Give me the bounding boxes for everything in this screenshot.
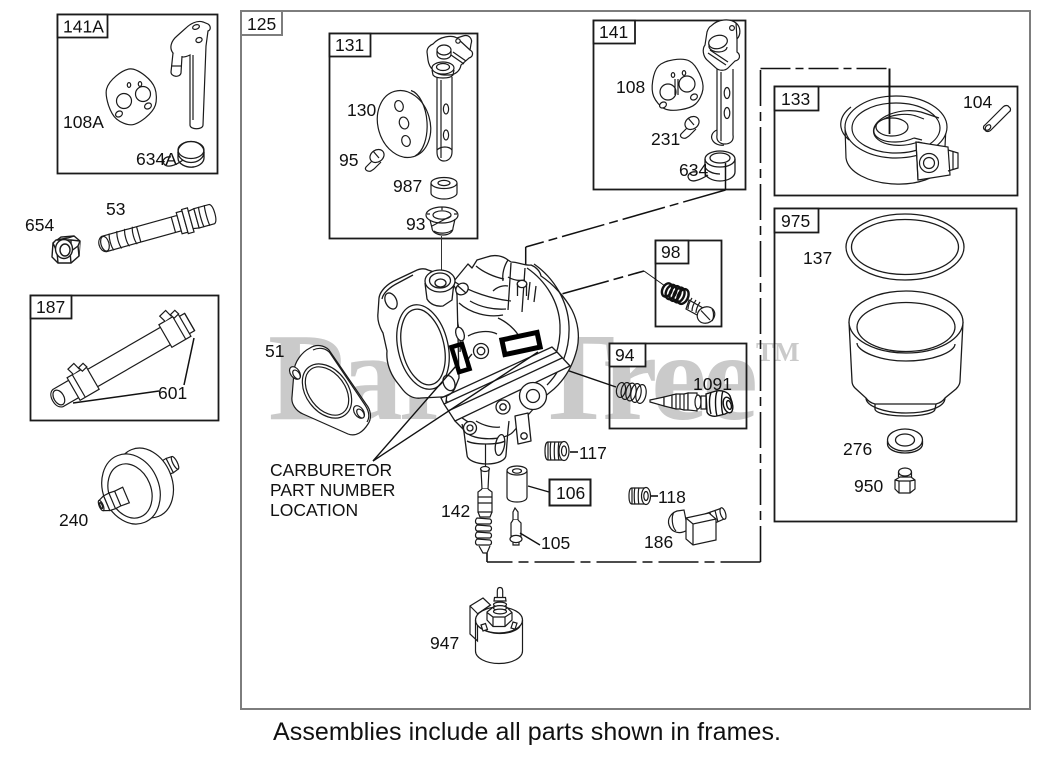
svg-text:133: 133: [781, 89, 810, 109]
svg-text:987: 987: [393, 176, 422, 196]
svg-text:1091: 1091: [693, 374, 732, 394]
svg-text:Assemblies include all parts s: Assemblies include all parts shown in fr…: [273, 718, 781, 746]
svg-text:106: 106: [556, 483, 585, 503]
svg-text:240: 240: [59, 510, 88, 530]
svg-text:53: 53: [106, 199, 125, 219]
svg-text:CARBURETOR: CARBURETOR: [270, 460, 392, 480]
svg-text:105: 105: [541, 533, 570, 553]
svg-text:276: 276: [843, 439, 872, 459]
svg-text:118: 118: [658, 487, 686, 507]
svg-text:125: 125: [247, 14, 276, 34]
svg-text:141A: 141A: [63, 17, 104, 37]
svg-text:104: 104: [963, 92, 992, 112]
svg-text:187: 187: [36, 297, 65, 317]
svg-text:LOCATION: LOCATION: [270, 500, 358, 520]
svg-text:137: 137: [803, 248, 832, 268]
svg-text:601: 601: [158, 383, 187, 403]
svg-text:141: 141: [599, 22, 628, 42]
svg-text:98: 98: [661, 242, 680, 262]
svg-text:947: 947: [430, 633, 459, 653]
svg-text:108A: 108A: [63, 112, 104, 132]
svg-text:634: 634: [679, 160, 708, 180]
svg-text:950: 950: [854, 476, 883, 496]
svg-text:654: 654: [25, 215, 54, 235]
svg-text:130: 130: [347, 100, 376, 120]
svg-text:117: 117: [579, 443, 607, 463]
svg-text:95: 95: [339, 150, 358, 170]
svg-text:PART NUMBER: PART NUMBER: [270, 480, 395, 500]
svg-text:975: 975: [781, 211, 810, 231]
svg-text:231: 231: [651, 129, 680, 149]
svg-text:93: 93: [406, 214, 425, 234]
svg-text:142: 142: [441, 501, 470, 521]
svg-text:186: 186: [644, 532, 673, 552]
svg-text:TM: TM: [756, 337, 800, 367]
svg-text:51: 51: [265, 341, 284, 361]
svg-text:131: 131: [335, 35, 364, 55]
svg-text:108: 108: [616, 77, 645, 97]
svg-text:94: 94: [615, 345, 635, 365]
svg-text:634A: 634A: [136, 149, 177, 169]
